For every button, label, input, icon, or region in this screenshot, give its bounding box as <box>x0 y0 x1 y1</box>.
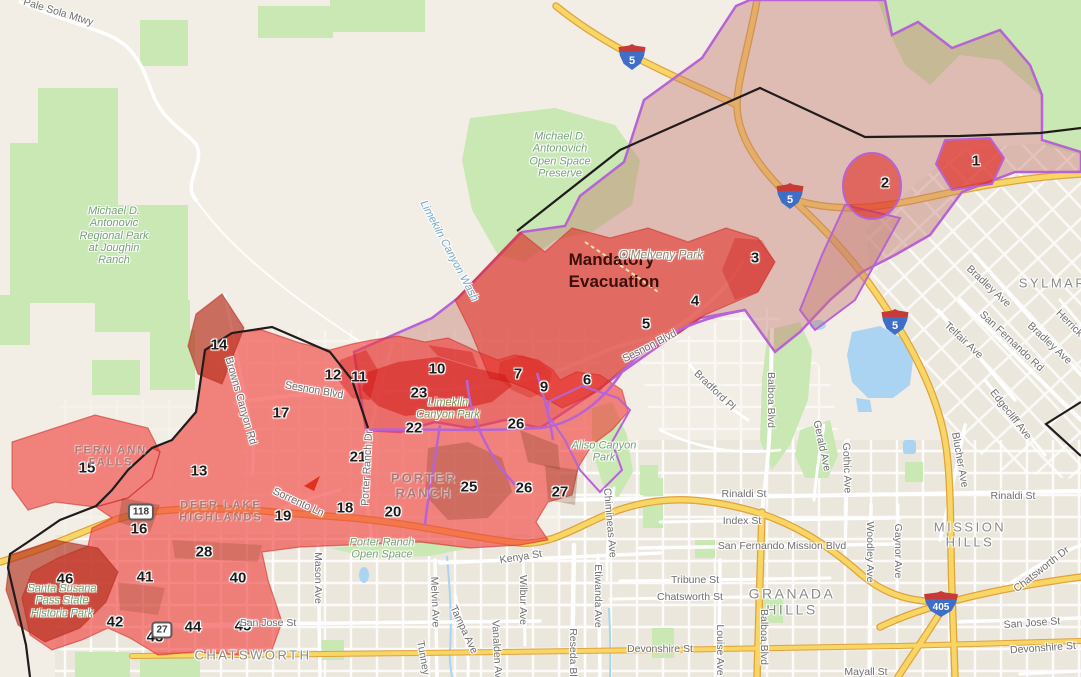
zone-number: 5 <box>642 316 650 333</box>
city-label-mission-hills: MISSIONHILLS <box>934 520 1006 549</box>
street-label: Edgecliff Ave <box>987 388 1033 443</box>
zone-number: 3 <box>751 250 759 267</box>
zone-number: 16 <box>131 521 148 538</box>
park-label-porter-ranch-open-space: Porter RanchOpen Space <box>350 537 415 562</box>
zone-number: 14 <box>211 337 228 354</box>
street-label: Melvin Ave <box>427 577 441 628</box>
street-label: Wilbur Ave <box>516 575 528 625</box>
street-label: San Fernando Rd <box>977 309 1046 374</box>
park-label-limekiln-canyon: LimekilnCanyon Park <box>416 397 480 422</box>
park-label-santa-susana: Santa SusanaPass StateHistoric Park <box>27 583 96 620</box>
street-label: San Jose St <box>1003 616 1060 632</box>
street-label: Bradford Pl <box>691 369 737 414</box>
label-fern-ann-falls: FERN ANNFALLS <box>75 445 147 470</box>
street-label: Sesnon Blvd <box>621 328 679 365</box>
zone-number: 1 <box>972 153 980 170</box>
zone-number: 22 <box>406 420 423 437</box>
street-label: Woodley Ave <box>863 522 875 583</box>
zone-number: 17 <box>273 405 290 422</box>
zone-number: 11 <box>351 369 367 386</box>
label-porter-ranch: PORTERRANCH <box>391 471 457 500</box>
interstate-5-shield: 5 <box>882 309 909 335</box>
park-label-antonovich-preserve: Michael D.AntonovichOpen SpacePreserve <box>529 130 590 179</box>
interstate-5-shield: 5 <box>619 44 646 70</box>
street-label: Reseda Blvd <box>566 628 578 677</box>
street-label: Gerald Ave <box>810 419 832 472</box>
street-label: Louise Ave <box>713 624 725 675</box>
zone-number: 27 <box>552 484 569 501</box>
street-label: Tampa Ave <box>447 604 480 656</box>
sr-27-shield: 27 <box>151 622 172 639</box>
street-label: Gothic Ave <box>839 443 853 494</box>
water-label-limekiln-wash: Limekiln Canyon Wash <box>417 199 481 304</box>
zone-number: 9 <box>540 379 548 396</box>
zone-number: 25 <box>461 479 478 496</box>
zone-number: 40 <box>230 570 247 587</box>
street-label: Chimineas Ave <box>600 488 618 559</box>
street-label: Kenya St <box>499 549 543 567</box>
street-label: Devonshire St <box>627 644 693 656</box>
zone-number: 10 <box>429 361 446 378</box>
zone-number: 7 <box>514 366 522 383</box>
street-label: Porter Ranch Dr <box>360 430 376 506</box>
park-label-omelveny: O'Melveny Park <box>619 248 703 261</box>
street-label: Balboa Blvd <box>757 609 769 665</box>
street-label: Browns Canyon Rd <box>222 356 258 446</box>
zone-number: 13 <box>191 463 208 480</box>
street-label: Mayall St <box>844 667 887 677</box>
map-labels-layer: 1234567910111213141516171819202122232526… <box>0 0 1081 677</box>
street-label: Vanalden Ave <box>488 620 503 677</box>
street-label: Balboa Blvd <box>764 372 776 428</box>
zone-number: 18 <box>337 500 354 517</box>
interstate-5-shield: 5 <box>777 183 804 209</box>
street-label: Etiwanda Ave <box>591 564 603 627</box>
city-label-sylmar: SYLMAR <box>1019 277 1081 292</box>
street-label: Index St <box>723 516 762 528</box>
zone-number: 26 <box>516 480 533 497</box>
street-label: Telfair Ave <box>941 320 984 361</box>
street-label: Pale Sola Mtwy <box>22 0 95 29</box>
street-label: Blucher Ave <box>948 431 969 488</box>
street-label: Tribune St <box>671 575 719 587</box>
zone-number: 20 <box>385 504 402 521</box>
street-label: Mason Ave <box>311 552 323 604</box>
zone-number: 19 <box>275 508 292 525</box>
zone-number: 2 <box>881 175 889 192</box>
park-label-antonovic-regional: Michael D.AntonovicRegional Parkat Jough… <box>79 205 148 267</box>
zone-number: 41 <box>137 569 154 586</box>
street-label: Tunney Ave <box>413 640 434 677</box>
street-label: Bradley Ave <box>964 264 1013 311</box>
street-label: Chatsworth Dr <box>1012 545 1072 596</box>
street-label: Chatsworth St <box>657 592 723 604</box>
interstate-405-shield: 405 <box>924 591 958 617</box>
street-label: San Jose St <box>240 618 297 630</box>
evacuation-map[interactable]: 1234567910111213141516171819202122232526… <box>0 0 1081 677</box>
city-label-chatsworth: CHATSWORTH <box>195 649 312 664</box>
label-deer-lake-highlands: DEER LAKEHIGHLANDS <box>179 500 262 525</box>
street-label: San Fernando Mission Blvd <box>718 541 846 553</box>
zone-number: 42 <box>107 614 124 631</box>
zone-number: 6 <box>583 372 591 389</box>
zone-number: 12 <box>325 367 342 384</box>
zone-number: 28 <box>196 544 213 561</box>
street-label: Rinaldi St <box>991 491 1036 503</box>
street-label: Gaynor Ave <box>891 524 903 579</box>
street-label: Devonshire St <box>1010 641 1077 657</box>
park-label-aliso-canyon: Aliso CanyonPark <box>572 440 637 465</box>
sr-118-shield: 118 <box>128 504 154 521</box>
zone-number: 44 <box>185 619 202 636</box>
street-label: Rinaldi St <box>722 489 767 501</box>
zone-number: 26 <box>508 416 525 433</box>
zone-number: 4 <box>691 293 699 310</box>
